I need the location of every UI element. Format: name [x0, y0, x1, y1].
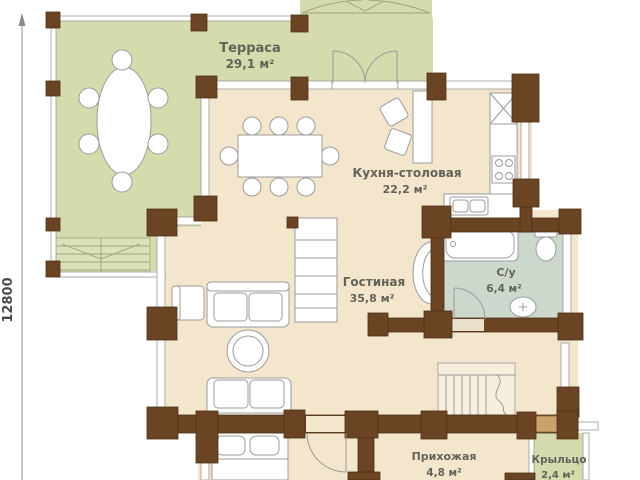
wall-post	[291, 77, 308, 100]
kitchen-label: Кухня-столовая	[352, 166, 461, 180]
stairhall-window-right	[561, 343, 569, 389]
corner-post	[557, 411, 578, 439]
dining-chair	[270, 178, 288, 196]
terrace-railing-bottom	[51, 272, 165, 277]
floor-plan: 12800 Терраса 29,1 м² Кухня-столовая 22,…	[0, 0, 640, 480]
terrace-post	[46, 81, 60, 96]
kitchen-window-left	[201, 96, 209, 198]
kitchen-window-top-far-right	[444, 81, 516, 89]
toilet-bowl	[536, 237, 556, 261]
dimension-arrow-top	[19, 13, 26, 26]
terrace-chair	[112, 50, 132, 70]
dining-table	[238, 135, 322, 177]
floor-plan-svg: 12800 Терраса 29,1 м² Кухня-столовая 22,…	[0, 0, 640, 480]
dining-chair	[321, 147, 339, 165]
kitchen-area: 22,2 м²	[383, 183, 428, 196]
kitchen-window-top-left	[210, 81, 332, 89]
terrace-post	[291, 15, 308, 32]
bathroom-door-gap	[452, 319, 484, 331]
bathroom-window-right	[563, 232, 571, 318]
terrace-railing-left	[51, 17, 56, 273]
terrace-table	[97, 67, 151, 175]
terrace-chair	[79, 88, 99, 108]
living-label: Гостиная	[343, 275, 405, 289]
living-area: 35,8 м²	[350, 292, 395, 305]
living-window-left-2	[157, 338, 165, 410]
pillow	[250, 436, 279, 455]
terrace-chair	[79, 134, 99, 154]
sofa-1-back	[207, 282, 289, 291]
wall-post	[368, 313, 388, 336]
bedroom-window-left	[201, 461, 209, 480]
bed	[212, 433, 288, 480]
bathroom-label: С/у	[496, 266, 515, 279]
wall-post	[147, 307, 177, 340]
entrance-door	[534, 416, 559, 432]
dining-chair	[243, 178, 261, 196]
porch-area: 2,4 м²	[541, 470, 575, 480]
wall-post	[424, 311, 452, 338]
sideboard	[413, 91, 432, 163]
pillow	[216, 436, 245, 455]
porch-step-edge	[577, 422, 598, 430]
wall-post	[194, 196, 217, 221]
corner-post	[558, 313, 583, 340]
terrace-steps	[52, 238, 150, 277]
porch-label: Крыльцо	[532, 454, 587, 466]
hallway-area: 4,8 м²	[426, 467, 462, 479]
dining-chair	[297, 178, 315, 196]
hallway-label: Прихожая	[412, 450, 477, 463]
terrace-chair	[148, 134, 168, 154]
terrace-post	[46, 218, 60, 231]
dining-chair	[220, 147, 238, 165]
cabinet	[295, 218, 337, 322]
wall-post	[517, 412, 536, 439]
bedroom-door-gap	[306, 416, 346, 432]
terrace-entry-bump	[300, 0, 432, 17]
wall-post	[421, 411, 447, 439]
dining-chair	[270, 117, 288, 135]
terrace-chair	[112, 172, 132, 192]
wall-post	[196, 411, 218, 463]
wall-post	[345, 411, 378, 438]
living-window-left-1	[157, 233, 165, 310]
staircase	[438, 363, 515, 415]
dining-chair	[297, 117, 315, 135]
wall-post	[513, 179, 539, 207]
corner-post	[512, 74, 539, 122]
bottom-edge-post	[505, 473, 535, 480]
kitchen-window-right	[521, 120, 529, 182]
dining-chair	[243, 117, 261, 135]
wall-post	[284, 410, 305, 438]
terrace-post	[46, 12, 60, 28]
corner-post	[147, 209, 177, 236]
dimension-value: 12800	[1, 277, 16, 322]
wall-post	[422, 206, 451, 238]
corner-post	[427, 73, 446, 100]
corner-post	[559, 209, 581, 234]
corner-post	[196, 76, 217, 98]
cabinet-post	[287, 217, 298, 228]
corner-post	[147, 407, 178, 439]
terrace-post	[46, 261, 60, 277]
terrace-post	[191, 14, 207, 31]
bathroom-area: 6,4 м²	[486, 283, 522, 295]
terrace-railing-top	[51, 16, 297, 21]
terrace-label: Терраса	[219, 41, 281, 56]
dimension-line: 12800	[1, 13, 26, 480]
terrace-area: 29,1 м²	[226, 57, 275, 71]
bottom-edge-post	[348, 472, 380, 480]
terrace-chair	[148, 88, 168, 108]
